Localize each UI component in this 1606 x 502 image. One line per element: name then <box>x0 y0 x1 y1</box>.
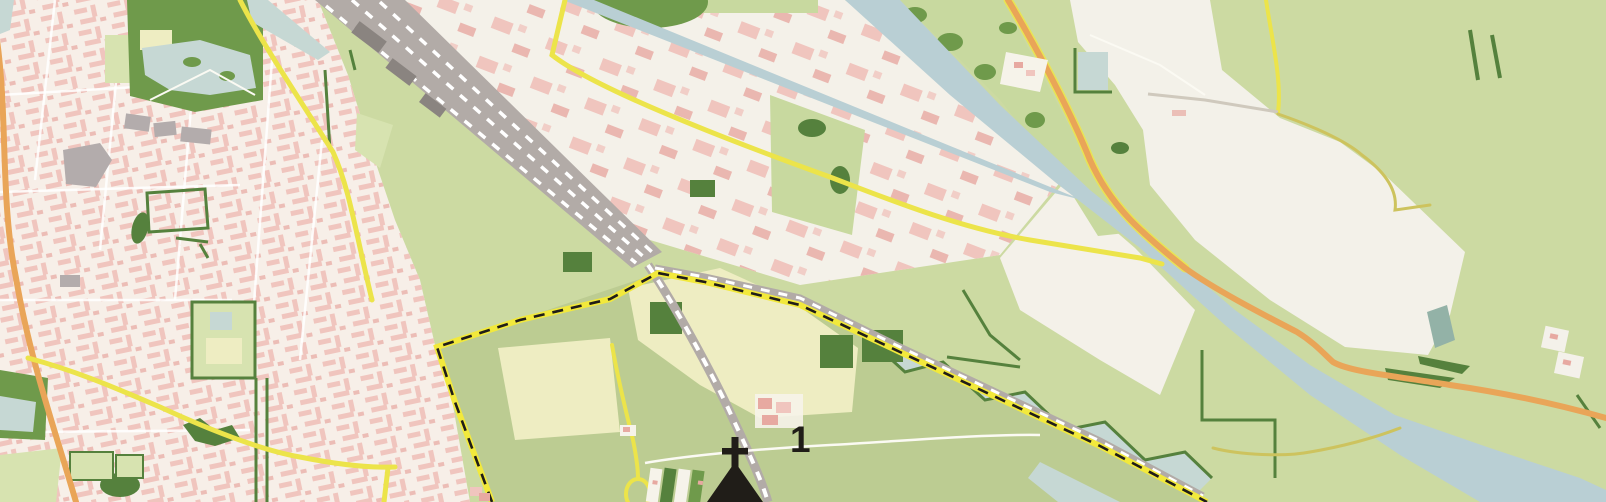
map-label-mark <box>1172 110 1186 116</box>
sports-field <box>70 452 113 480</box>
sports-field <box>116 455 143 478</box>
pond-ne <box>1078 52 1108 90</box>
map-surface[interactable]: 1 <box>0 0 1606 502</box>
pond-west <box>0 396 36 432</box>
area-marker-1: 1 <box>790 419 811 460</box>
map-canvas[interactable]: 1 <box>0 0 1606 502</box>
